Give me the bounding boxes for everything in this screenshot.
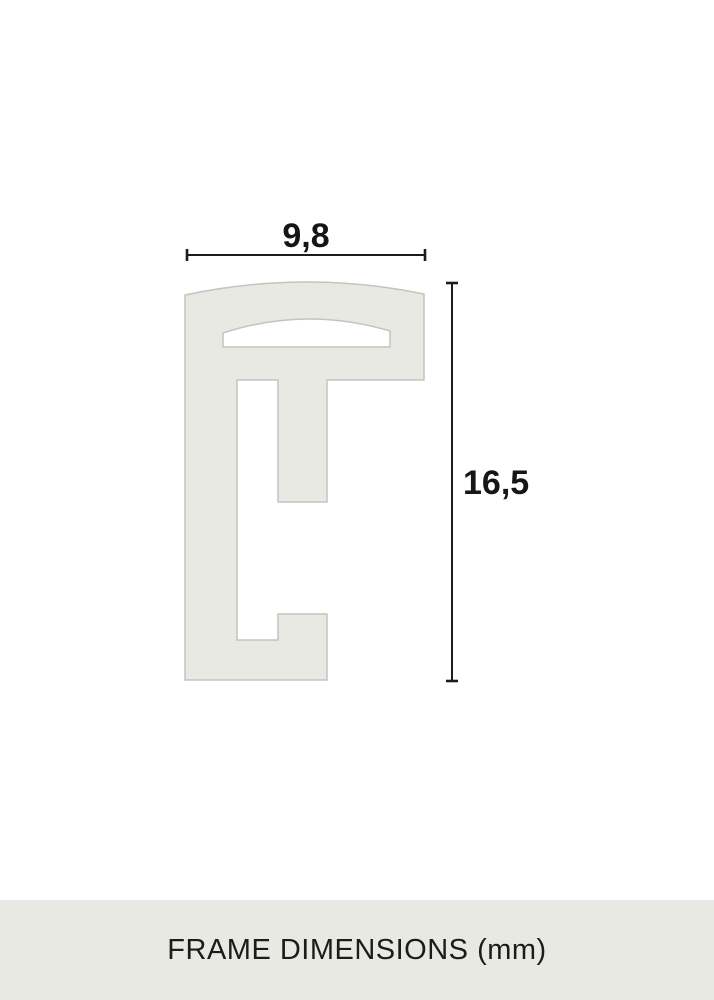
caption-text: FRAME DIMENSIONS (mm) <box>167 934 546 967</box>
height-dimension-line <box>446 283 458 681</box>
frame-profile-diagram <box>0 0 714 1000</box>
width-dimension-value: 9,8 <box>236 219 376 253</box>
caption-bar: FRAME DIMENSIONS (mm) <box>0 900 714 1000</box>
height-dimension-value: 16,5 <box>463 466 529 500</box>
frame-dimensions-page: 9,8 16,5 FRAME DIMENSIONS (mm) <box>0 0 714 1000</box>
frame-profile-shape <box>185 282 424 680</box>
